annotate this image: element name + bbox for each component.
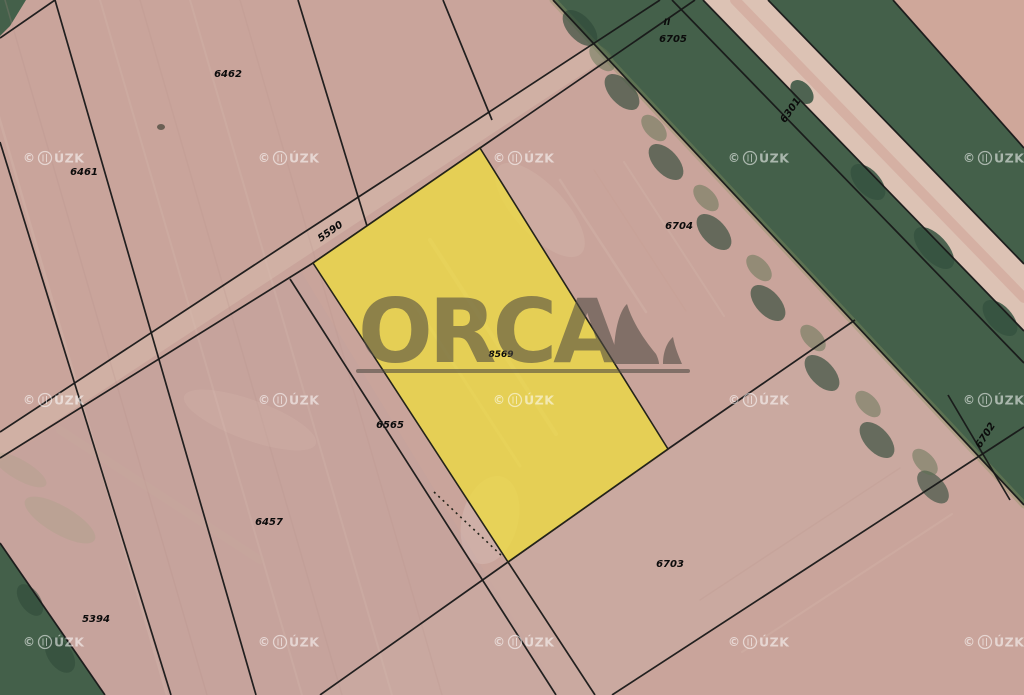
cuzk-watermark: ©ÚZK	[258, 393, 320, 408]
cuzk-watermark-text: ÚZK	[54, 151, 85, 166]
copyright-symbol: ©	[493, 151, 505, 165]
copyright-symbol: ©	[728, 635, 740, 649]
vegetation-blob	[157, 124, 165, 130]
cuzk-watermark-text: ÚZK	[524, 393, 555, 408]
cuzk-watermark: ©ÚZK	[963, 393, 1024, 408]
copyright-symbol: ©	[23, 635, 35, 649]
parcel-label-6457: 6457	[255, 517, 283, 528]
copyright-symbol: ©	[963, 635, 975, 649]
cuzk-watermark-text: ÚZK	[759, 635, 790, 650]
orca-logo-text: ORCA	[358, 280, 621, 383]
parcel-label-II: II	[664, 18, 671, 28]
cuzk-watermark: ©ÚZK	[23, 151, 85, 166]
cuzk-watermark: ©ÚZK	[728, 393, 790, 408]
cuzk-watermark-text: ÚZK	[289, 151, 320, 166]
cuzk-watermark-text: ÚZK	[759, 393, 790, 408]
parcel-label-6704: 6704	[665, 221, 693, 232]
copyright-symbol: ©	[493, 393, 505, 407]
cuzk-watermark: ©ÚZK	[258, 635, 320, 650]
cuzk-watermark-text: ÚZK	[54, 635, 85, 650]
cuzk-watermark: ©ÚZK	[258, 151, 320, 166]
cuzk-watermark: ©ÚZK	[493, 151, 555, 166]
parcel-label-6705: 6705	[659, 34, 687, 45]
copyright-symbol: ©	[728, 151, 740, 165]
cuzk-watermark-text: ÚZK	[994, 635, 1024, 650]
cuzk-watermark-text: ÚZK	[289, 393, 320, 408]
cuzk-watermark: ©ÚZK	[23, 393, 85, 408]
cuzk-watermark: ©ÚZK	[963, 635, 1024, 650]
parcel-label-5394: 5394	[82, 614, 110, 625]
map-image: 64626461II670563016704559085696565645753…	[0, 0, 1024, 695]
cuzk-watermark-text: ÚZK	[524, 635, 555, 650]
parcel-label-6461: 6461	[70, 167, 98, 178]
cuzk-watermark-text: ÚZK	[994, 393, 1024, 408]
orca-logo-underline	[356, 369, 690, 373]
cuzk-watermark: ©ÚZK	[728, 635, 790, 650]
cuzk-watermark-text: ÚZK	[524, 151, 555, 166]
cadastral-map[interactable]: 64626461II670563016704559085696565645753…	[0, 0, 1024, 695]
copyright-symbol: ©	[23, 151, 35, 165]
copyright-symbol: ©	[493, 635, 505, 649]
copyright-symbol: ©	[728, 393, 740, 407]
parcel-label-6462: 6462	[214, 69, 242, 80]
copyright-symbol: ©	[258, 635, 270, 649]
copyright-symbol: ©	[963, 151, 975, 165]
cuzk-watermark-text: ÚZK	[759, 151, 790, 166]
copyright-symbol: ©	[23, 393, 35, 407]
cuzk-watermark: ©ÚZK	[493, 393, 555, 408]
parcel-label-6703: 6703	[656, 559, 684, 570]
cuzk-watermark: ©ÚZK	[23, 635, 85, 650]
cuzk-watermark-text: ÚZK	[54, 393, 85, 408]
cuzk-watermark-text: ÚZK	[994, 151, 1024, 166]
cuzk-watermark: ©ÚZK	[963, 151, 1024, 166]
copyright-symbol: ©	[258, 393, 270, 407]
copyright-symbol: ©	[258, 151, 270, 165]
copyright-symbol: ©	[963, 393, 975, 407]
cuzk-watermark: ©ÚZK	[728, 151, 790, 166]
cuzk-watermark-text: ÚZK	[289, 635, 320, 650]
cuzk-watermark: ©ÚZK	[493, 635, 555, 650]
parcel-label-6565: 6565	[376, 420, 404, 431]
